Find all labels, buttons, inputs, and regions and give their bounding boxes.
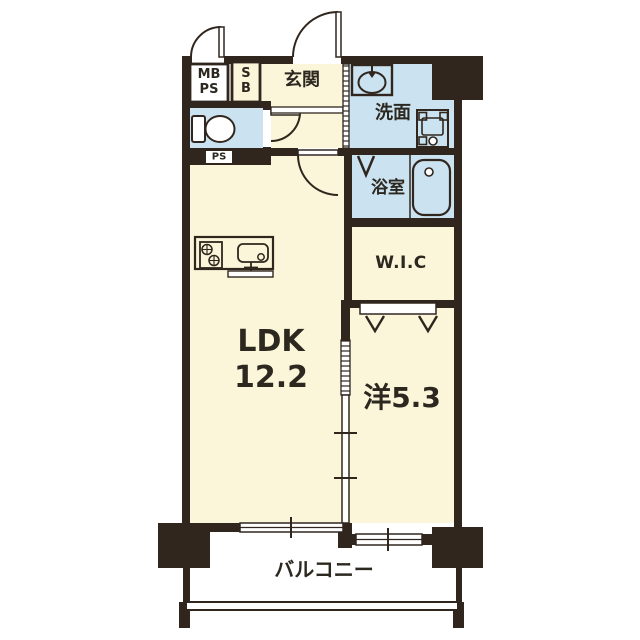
- washroom-sliding-door-icon: [343, 64, 349, 148]
- bathroom-label: 浴室: [371, 179, 405, 199]
- meter-box-label-line2: PS: [200, 82, 219, 97]
- western-room-label: 洋5.3: [363, 382, 441, 414]
- meter-box-label-line1: MB: [198, 67, 221, 82]
- wic-label: W.I.C: [375, 254, 427, 274]
- balcony-label: バルコニー: [274, 559, 374, 582]
- entrance-door-icon: [293, 12, 341, 57]
- ldk-label-size: 12.2: [234, 360, 308, 395]
- meter-box-door-icon: [191, 27, 224, 57]
- western-room-floor: [349, 308, 454, 523]
- corner-pillar-bottom-right: [432, 527, 483, 568]
- meter-box-label: MB PS: [198, 68, 221, 98]
- balcony-railing-icon: [186, 602, 458, 610]
- entrance-step: [271, 107, 343, 113]
- toilet-icon: [192, 116, 235, 142]
- corner-pillar-bottom-left: [158, 523, 210, 568]
- floorplan-drawing: [0, 0, 640, 640]
- closet-shelf-icon: [360, 303, 436, 314]
- floorplan-canvas: MB PS S B 玄関 洗面 PS 浴室 W.I.C LDK 12.2 洋5.…: [0, 0, 640, 640]
- pipe-space-label: PS: [212, 151, 227, 163]
- entrance-label: 玄関: [284, 71, 320, 92]
- washroom-label: 洗面: [375, 104, 411, 125]
- ldk-label-name: LDK: [237, 324, 304, 359]
- counter-ledge: [228, 271, 273, 277]
- bedroom-balcony-window-icon: [356, 528, 422, 551]
- shoe-box-label: S B: [241, 67, 251, 97]
- vanity-sink-icon: [417, 110, 448, 147]
- ldk-label: LDK 12.2: [234, 324, 308, 396]
- bathtub-icon: [410, 155, 450, 218]
- shoe-box-label-line1: S: [241, 66, 250, 81]
- corner-pillar-top-right: [432, 56, 483, 100]
- shoe-box-label-line2: B: [241, 81, 251, 96]
- washing-machine-icon: [352, 65, 392, 95]
